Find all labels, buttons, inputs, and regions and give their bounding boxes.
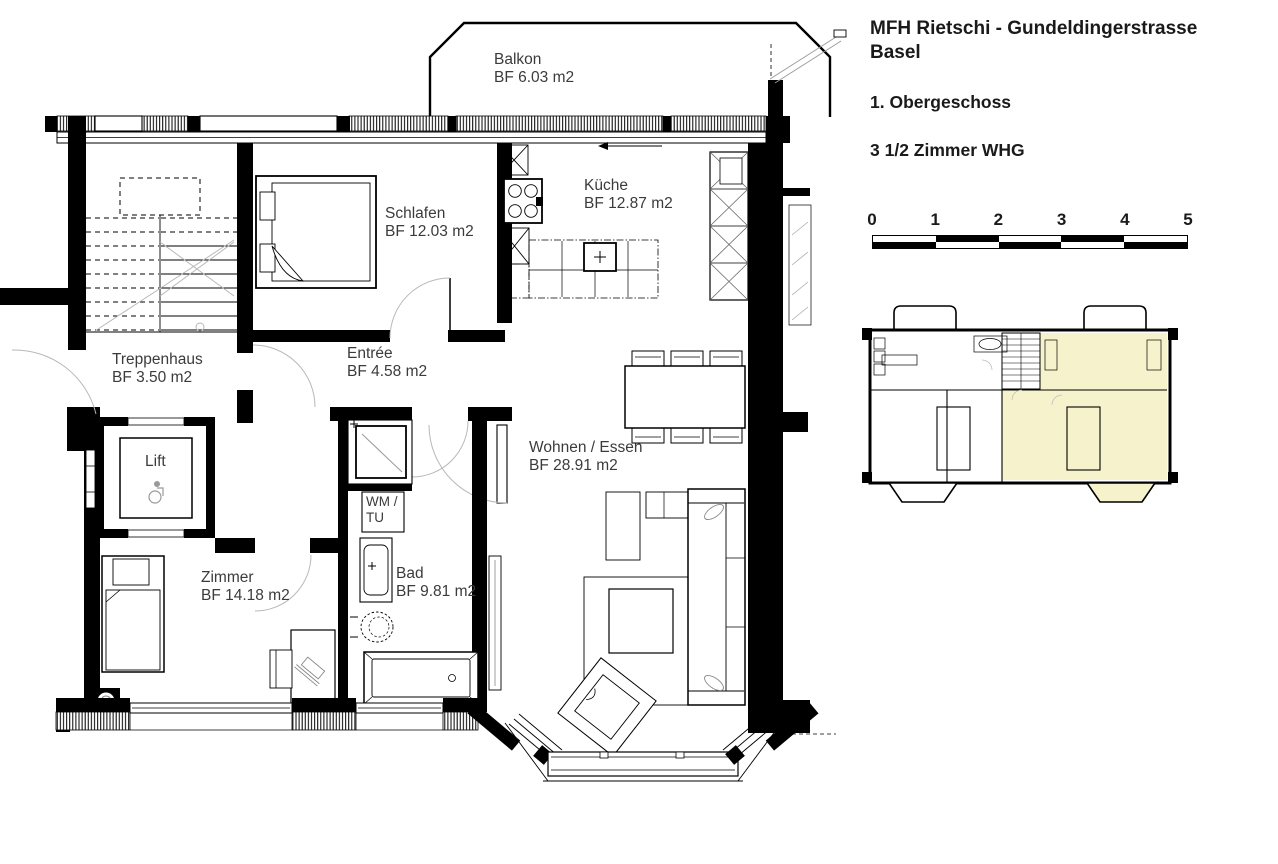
label-wohnen-essen: Wohnen / EssenBF 28.91 m2 <box>529 439 642 475</box>
label-treppenhaus: TreppenhausBF 3.50 m2 <box>112 351 203 387</box>
schlafen-door-arc <box>390 278 450 338</box>
right-exterior-wall <box>748 80 810 733</box>
lift-cab <box>120 438 192 518</box>
toilet <box>361 612 393 642</box>
scale-bar-graphic <box>872 235 1188 249</box>
sideboard <box>606 492 640 560</box>
label-bad: BadBF 9.81 m2 <box>396 565 476 601</box>
scale-tick: 5 <box>1175 210 1201 230</box>
armchair <box>558 658 656 756</box>
scale-tick: 3 <box>1049 210 1075 230</box>
overview-balcony-left <box>894 306 956 330</box>
floor-label: 1. Obergeschoss <box>870 92 1011 113</box>
scale-bar: 0 1 2 3 4 5 <box>872 210 1188 249</box>
lift-shaft <box>86 417 215 538</box>
overview-balcony-right <box>1084 306 1146 330</box>
label-lift: Lift <box>145 453 166 471</box>
bottom-exterior-wall <box>56 698 478 730</box>
living-dining <box>489 351 745 756</box>
overview-bay-left <box>889 483 957 502</box>
wohnen-door-arc <box>429 425 507 503</box>
scale-tick: 1 <box>922 210 948 230</box>
label-kueche: KücheBF 12.87 m2 <box>584 177 673 213</box>
title-block: MFH Rietschi - Gundeldingerstrasse Basel <box>870 17 1197 65</box>
dining-table <box>625 366 745 428</box>
label-balkon: BalkonBF 6.03 m2 <box>494 51 574 87</box>
dining-set <box>625 351 745 443</box>
apartment-label: 3 1/2 Zimmer WHG <box>870 140 1025 161</box>
overview-bay-right <box>1087 483 1155 502</box>
label-entree: EntréeBF 4.58 m2 <box>347 345 427 381</box>
schlafen-room <box>253 176 450 342</box>
sofa <box>688 489 745 705</box>
coffee-table <box>609 589 673 653</box>
overview-stairs <box>1002 333 1040 389</box>
label-zimmer: ZimmerBF 14.18 m2 <box>201 569 290 605</box>
pillow <box>113 559 149 585</box>
sideboard <box>646 492 692 518</box>
project-title-line1: MFH Rietschi - Gundeldingerstrasse <box>870 17 1197 41</box>
wohnen-door-leaf <box>497 425 507 503</box>
zimmer-room <box>92 538 338 714</box>
pillow <box>260 192 275 220</box>
scale-tick: 2 <box>985 210 1011 230</box>
kitchen <box>497 142 748 323</box>
floorplan-page: BalkonBF 6.03 m2 SchlafenBF 12.03 m2 Küc… <box>0 0 1278 864</box>
scale-tick: 4 <box>1112 210 1138 230</box>
overview-highlight-upper <box>1040 333 1167 390</box>
bathroom <box>338 415 487 712</box>
scale-tick: 0 <box>859 210 885 230</box>
left-walls <box>0 116 100 732</box>
overview-highlight-lower <box>1002 390 1167 480</box>
top-exterior-wall <box>45 116 790 143</box>
scale-bar-ticks: 0 1 2 3 4 5 <box>872 210 1188 232</box>
label-schlafen: SchlafenBF 12.03 m2 <box>385 205 474 241</box>
bad-door-arc <box>412 421 468 477</box>
bathtub <box>364 652 478 704</box>
desk-chair <box>270 650 292 688</box>
label-wm-tu: WM /TU <box>366 494 398 526</box>
project-title-line2: Basel <box>870 41 1197 65</box>
main-floorplan-drawing <box>0 0 850 820</box>
overview-key-plan <box>862 300 1182 512</box>
